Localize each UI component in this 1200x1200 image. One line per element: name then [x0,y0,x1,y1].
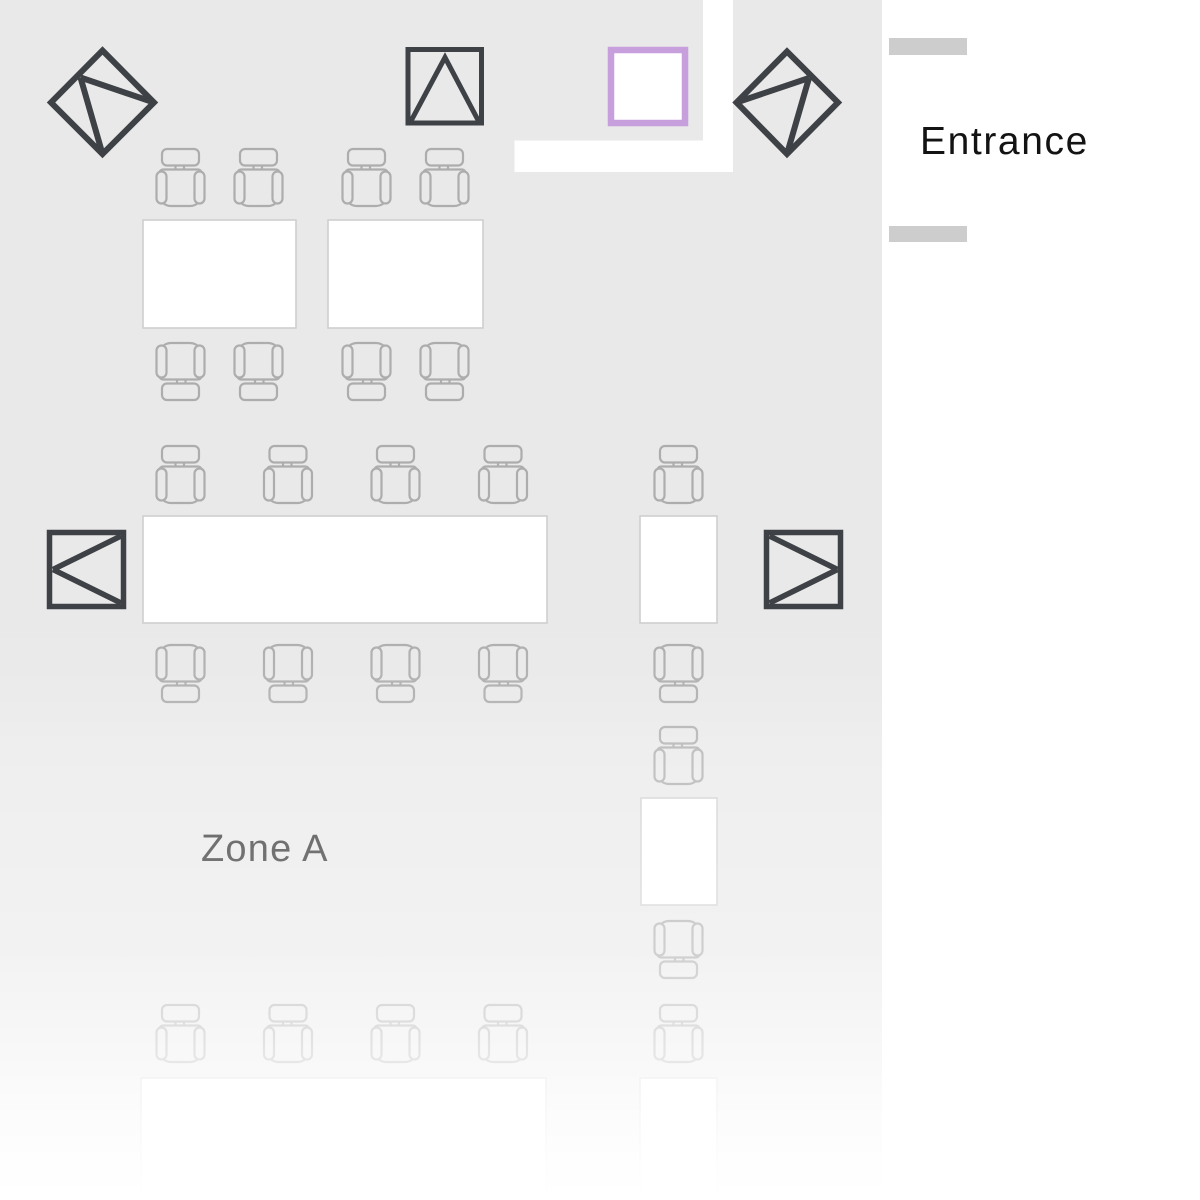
svg-text:Entrance: Entrance [920,120,1089,163]
